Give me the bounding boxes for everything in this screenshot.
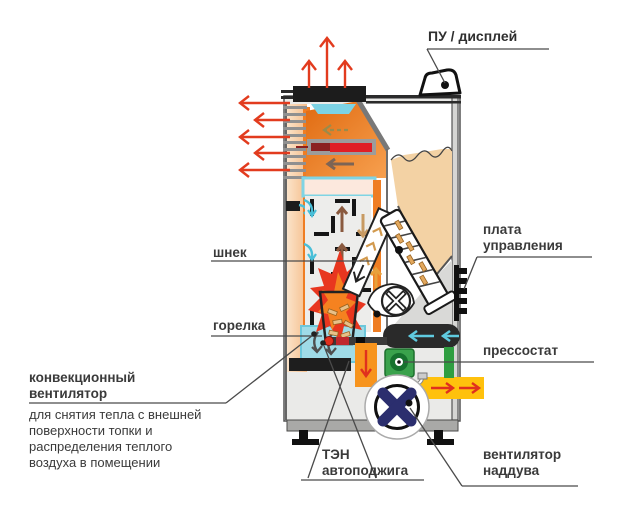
control-board [454,265,467,321]
air-intake-duct [383,324,460,348]
label-auger: шнек [213,245,303,261]
side-port [286,201,300,211]
flue-opening [311,104,356,114]
label-pressure-switch: прессостат [483,343,603,359]
label-ignition-heater: ТЭН автоподжига [322,447,432,479]
label-control-board: плата управления [483,222,595,254]
blower-fan-icon [365,375,429,439]
label-burner: горелка [213,318,303,334]
heating-bar [330,143,372,152]
label-convection-fan-note: для снятия тепла с внешней поверхности т… [29,407,214,470]
flue-outlet [293,86,366,102]
label-convection-fan: конвекционный вентилятор [29,370,199,402]
pellet-boiler-diagram: ПУ / дисплей шнек горелка конвекционный … [0,0,617,517]
label-blower-fan: вентилятор наддува [483,447,595,479]
label-control-display: ПУ / дисплей [428,28,568,45]
ash-pan [289,358,351,371]
